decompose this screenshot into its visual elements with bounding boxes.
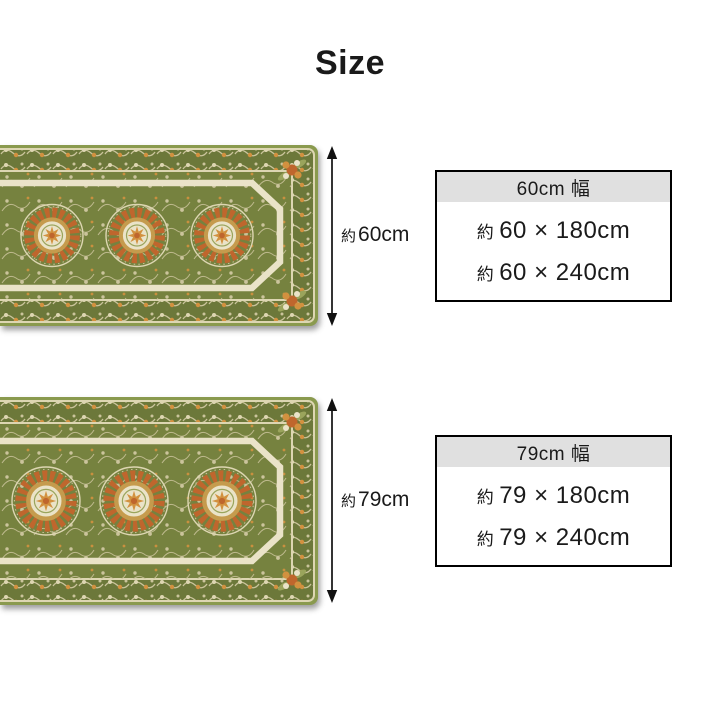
page-title: Size bbox=[0, 44, 700, 83]
size-dimensions: 79 × 180cm bbox=[499, 482, 630, 510]
approx-prefix: 約 bbox=[341, 228, 356, 245]
height-value: 60cm bbox=[358, 223, 409, 246]
size-box-60cm: 60cm 幅 約60 × 180cm 約60 × 240cm bbox=[435, 170, 672, 302]
size-row: 約60 × 240cm bbox=[477, 259, 631, 289]
vertical-double-arrow-icon bbox=[324, 398, 340, 603]
height-measure-79cm bbox=[324, 398, 340, 603]
size-box-rows: 約79 × 180cm 約79 × 240cm bbox=[437, 467, 670, 554]
size-row: 約79 × 240cm bbox=[477, 524, 631, 554]
rug-photo-79cm bbox=[0, 397, 318, 605]
height-label-60cm: 約60cm bbox=[341, 222, 409, 250]
rug-photo-60cm bbox=[0, 145, 318, 326]
height-value: 79cm bbox=[358, 488, 409, 511]
size-dimensions: 79 × 240cm bbox=[499, 524, 630, 552]
approx-prefix: 約 bbox=[477, 484, 495, 512]
size-row: 約60 × 180cm bbox=[477, 217, 631, 247]
approx-prefix: 約 bbox=[477, 219, 495, 247]
ornate-green-kitchen-mat-image bbox=[0, 397, 318, 605]
vertical-double-arrow-icon bbox=[324, 146, 340, 326]
size-dimensions: 60 × 180cm bbox=[499, 217, 630, 245]
size-dimensions: 60 × 240cm bbox=[499, 259, 630, 287]
size-row: 約79 × 180cm bbox=[477, 482, 631, 512]
approx-prefix: 約 bbox=[477, 526, 495, 554]
approx-prefix: 約 bbox=[477, 261, 495, 289]
height-label-79cm: 約79cm bbox=[341, 487, 409, 515]
ornate-green-kitchen-mat-image bbox=[0, 145, 318, 326]
height-measure-60cm bbox=[324, 146, 340, 326]
size-box-header: 60cm 幅 bbox=[437, 172, 670, 202]
size-info-page: Size bbox=[0, 0, 720, 720]
size-box-79cm: 79cm 幅 約79 × 180cm 約79 × 240cm bbox=[435, 435, 672, 567]
size-box-header: 79cm 幅 bbox=[437, 437, 670, 467]
approx-prefix: 約 bbox=[341, 493, 356, 510]
size-box-rows: 約60 × 180cm 約60 × 240cm bbox=[437, 202, 670, 289]
